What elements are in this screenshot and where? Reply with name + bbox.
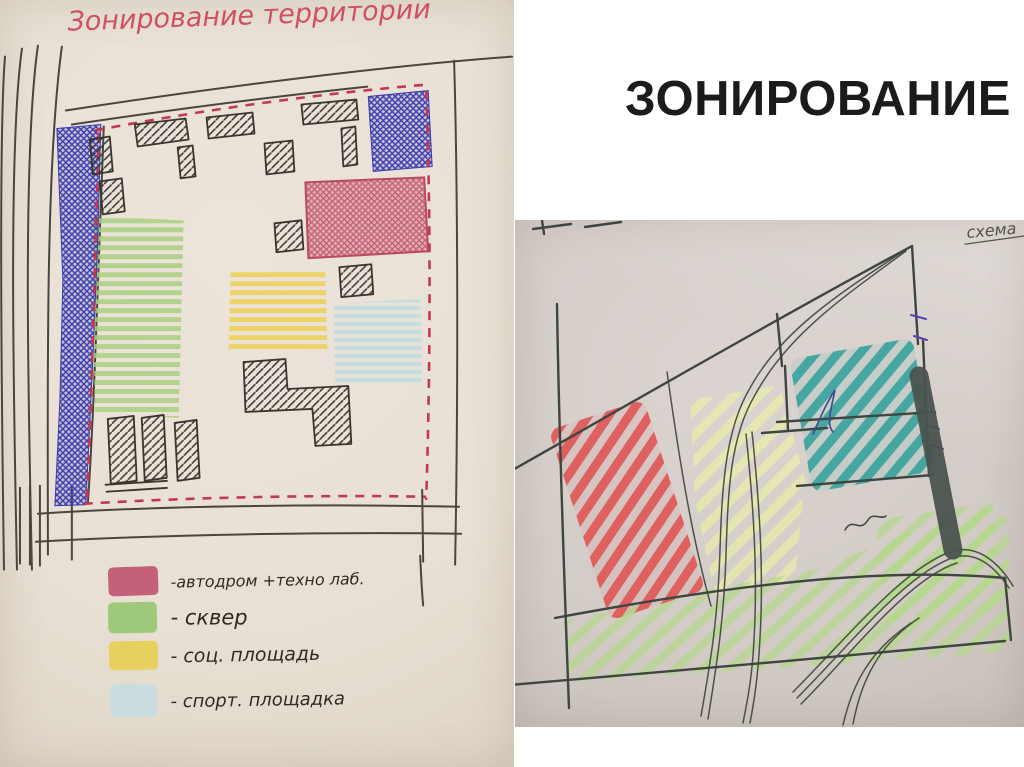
- legend-item: - соц. площадь: [109, 641, 321, 671]
- sketch-title: Зонирование территории: [67, 0, 431, 38]
- legend-label-social-square: - соц. площадь: [170, 643, 320, 668]
- legend-label-garden: - сквер: [171, 606, 248, 630]
- legend-swatch-garden: [108, 602, 157, 634]
- legend-swatch-sports-ground: [110, 684, 157, 717]
- slide-canvas: Зонирование территории: [0, 0, 1024, 767]
- legend-label-autodrome: -автодром +техно лаб.: [170, 569, 364, 591]
- slide-title-area: ЗОНИРОВАНИЕ: [515, 0, 1024, 220]
- legend-swatch-autodrome: [108, 566, 159, 597]
- legend-item: - спорт. площадка: [110, 684, 345, 717]
- zone-garden-green: [92, 216, 184, 418]
- zone-sports-ground-cyan: [333, 299, 422, 386]
- legend: -автодром +техно лаб. - сквер - соц. пло…: [108, 566, 365, 717]
- legend-item: -автодром +техно лаб.: [108, 566, 365, 597]
- legend-label-sports-ground: - спорт. площадка: [170, 688, 345, 712]
- left-photo-zoning-plan: Зонирование территории: [0, 0, 514, 767]
- left-sketch-drawing: Зонирование территории: [0, 0, 514, 767]
- right-sketch-drawing: схема: [515, 220, 1024, 727]
- zone-teal-marker: [789, 338, 936, 493]
- legend-swatch-social-square: [109, 641, 158, 671]
- zone-autodrome-red: [305, 177, 428, 258]
- zone-red-marker: [549, 399, 706, 620]
- right-photo-scheme-sketch: схема: [515, 220, 1024, 727]
- slide-title: ЗОНИРОВАНИЕ: [515, 0, 1024, 125]
- schema-annotation: схема: [963, 220, 1024, 244]
- legend-item: - сквер: [108, 602, 248, 634]
- zone-social-square-yellow: [229, 269, 328, 352]
